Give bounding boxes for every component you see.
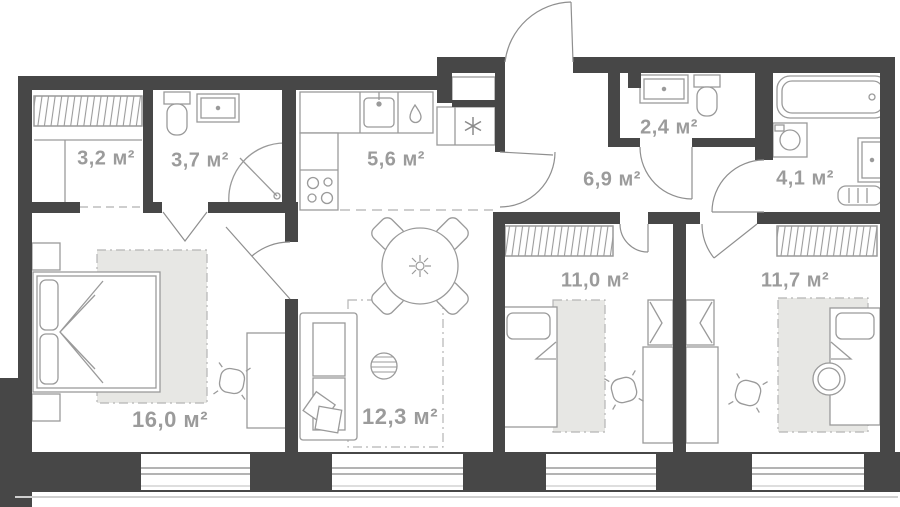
room-label-hallway: 6,9 м² bbox=[583, 169, 641, 192]
room-label-bedroom-2: 11,0 м² bbox=[561, 270, 629, 293]
floor-plan: 3,2 м² 3,7 м² 5,6 м² 2,4 м² 6,9 м² 4,1 м… bbox=[0, 0, 900, 507]
room-label-bathroom-small: 3,7 м² bbox=[171, 150, 229, 173]
dining-set bbox=[369, 215, 471, 317]
toilet-bowl-icon bbox=[697, 87, 717, 116]
room-label-bedroom-3: 11,7 м² bbox=[761, 270, 829, 293]
window bbox=[546, 454, 656, 490]
room-label-wardrobe: 3,2 м² bbox=[77, 148, 135, 171]
desk-chair bbox=[728, 373, 767, 412]
door-bedroom-2 bbox=[620, 224, 648, 252]
desk bbox=[686, 347, 718, 443]
nightstand bbox=[32, 394, 60, 421]
room-label-kitchen: 5,6 м² bbox=[367, 149, 425, 172]
hanger-rail-icon bbox=[505, 226, 613, 256]
window bbox=[332, 454, 463, 490]
room-label-bathroom: 4,1 м² bbox=[776, 168, 834, 191]
room-label-wc: 2,4 м² bbox=[640, 117, 698, 140]
washing-machine-icon bbox=[773, 123, 807, 157]
door-bedroom-3 bbox=[702, 224, 757, 258]
pillow bbox=[836, 313, 874, 339]
desk bbox=[247, 333, 286, 428]
towel-radiator-icon bbox=[838, 186, 882, 205]
hanger-rail-icon bbox=[34, 96, 142, 126]
kitchen-niche bbox=[452, 77, 495, 102]
room-label-bedroom-main: 16,0 м² bbox=[132, 407, 208, 433]
kitchen-fittings bbox=[300, 77, 495, 210]
desk-chair bbox=[604, 370, 643, 409]
cabinet bbox=[648, 300, 673, 345]
door-bathroom bbox=[712, 160, 764, 212]
toilet-tank-icon bbox=[164, 92, 190, 104]
rugs bbox=[97, 250, 868, 447]
entrance-door bbox=[505, 2, 573, 62]
pillow bbox=[40, 280, 58, 330]
door-bathroom-small bbox=[163, 212, 207, 241]
fridge bbox=[437, 107, 495, 145]
door-kitchen bbox=[500, 152, 555, 207]
bedroom-2-rug bbox=[553, 300, 605, 432]
door-bedroom-main bbox=[226, 227, 290, 299]
window bbox=[752, 454, 864, 490]
desk bbox=[643, 347, 673, 443]
bathroom-small-fixtures bbox=[164, 92, 285, 204]
pillow bbox=[507, 313, 550, 339]
room-label-living-room: 12,3 м² bbox=[362, 404, 438, 430]
hanger-rail-icon bbox=[777, 226, 877, 256]
wc-fixtures bbox=[640, 75, 720, 116]
pillow bbox=[40, 334, 58, 384]
bathtub-icon bbox=[777, 76, 888, 118]
desk-chair bbox=[213, 362, 250, 399]
toilet-bowl-icon bbox=[167, 104, 187, 135]
dining-table bbox=[382, 228, 458, 304]
nightstand bbox=[32, 243, 60, 270]
window bbox=[141, 454, 250, 490]
toilet-tank-icon bbox=[694, 75, 720, 87]
sofa-pillow bbox=[315, 406, 342, 433]
door-wc bbox=[640, 147, 692, 199]
